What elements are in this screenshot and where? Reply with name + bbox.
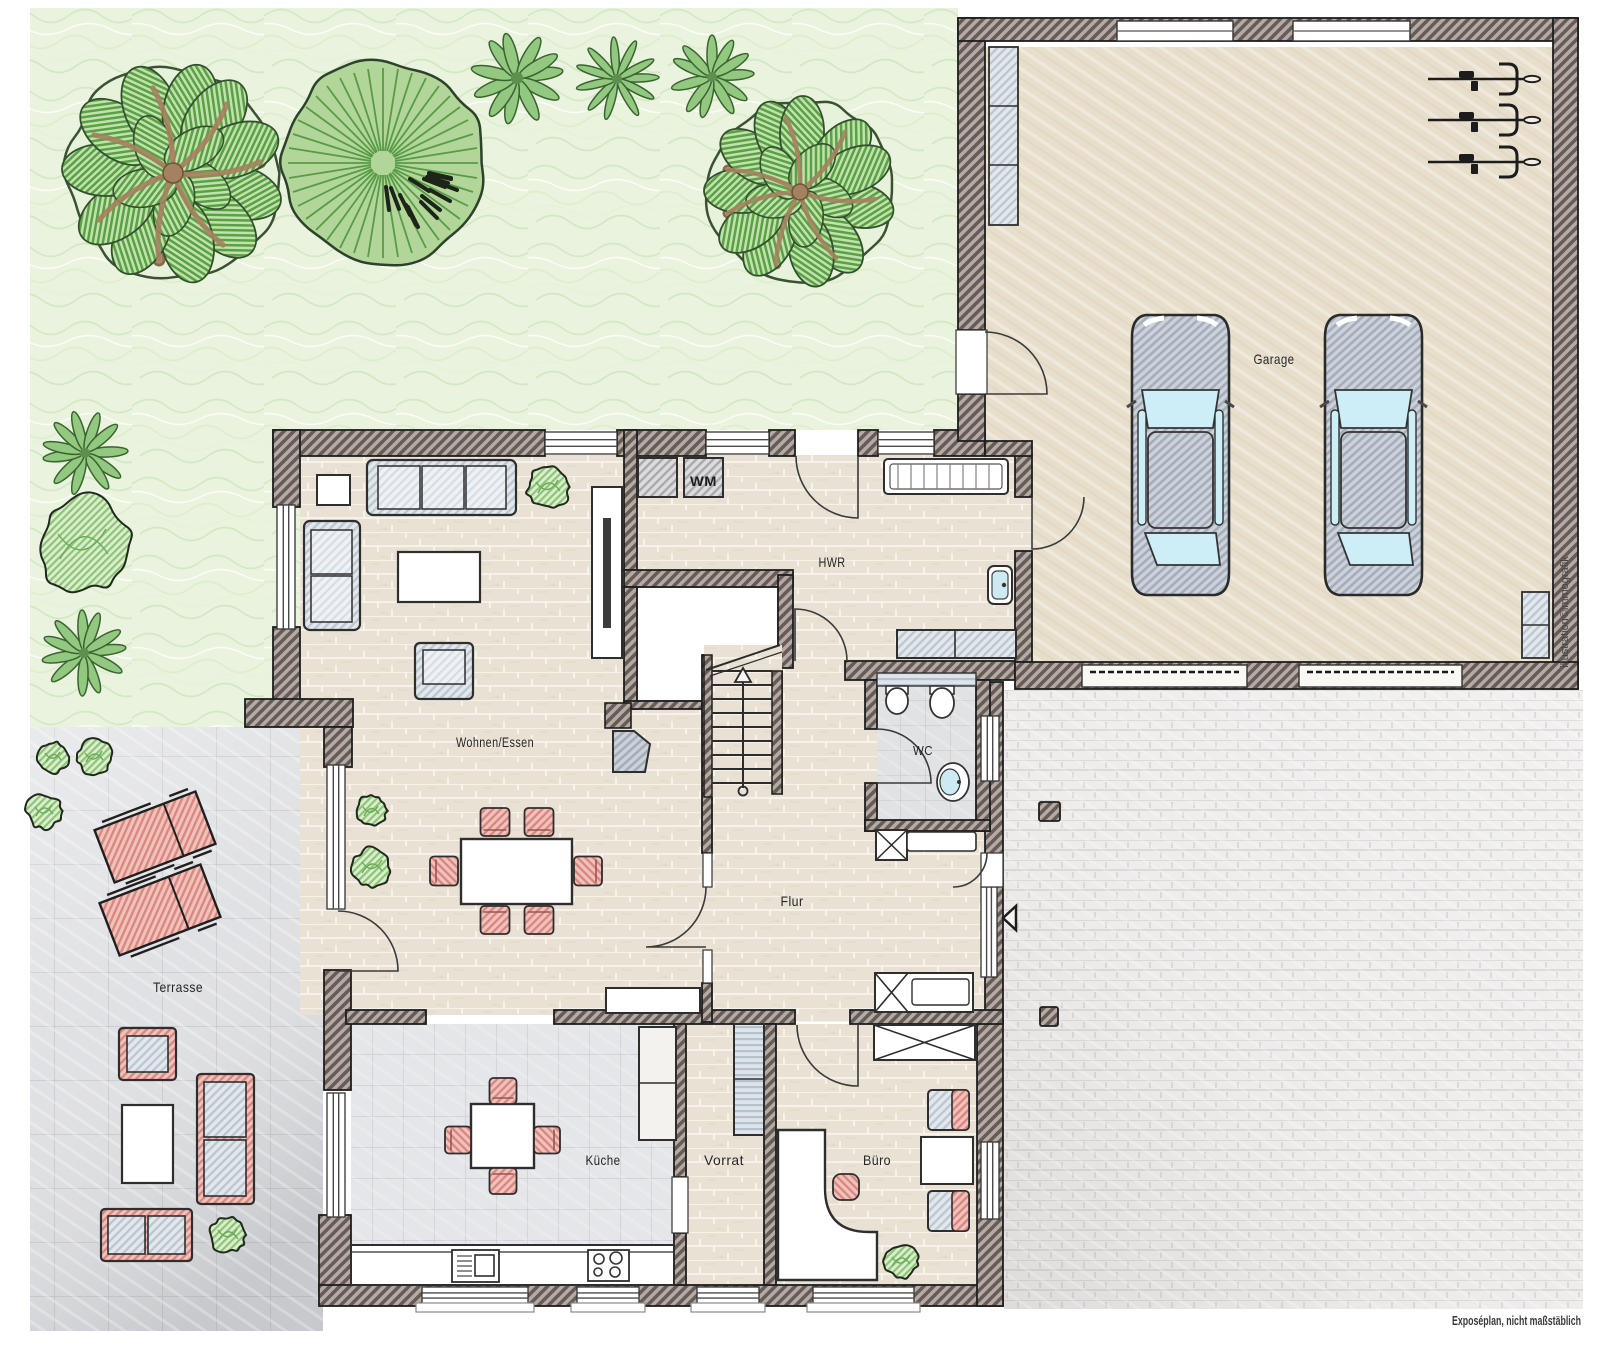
svg-text:WM: WM	[690, 473, 717, 489]
svg-text:Flur: Flur	[781, 893, 804, 909]
svg-text:Vorrat: Vorrat	[704, 1152, 744, 1168]
svg-text:illustration©immografik: illustration©immografik	[1559, 556, 1571, 668]
svg-text:Exposéplan, nicht maßstäblich: Exposéplan, nicht maßstäblich	[1452, 1313, 1581, 1328]
svg-text:Küche: Küche	[586, 1152, 621, 1168]
svg-text:HWR: HWR	[819, 554, 846, 570]
svg-text:Garage: Garage	[1254, 351, 1295, 367]
svg-text:Terrasse: Terrasse	[153, 979, 203, 995]
svg-text:Wohnen/Essen: Wohnen/Essen	[456, 734, 534, 750]
svg-text:WC: WC	[913, 743, 933, 758]
svg-text:Büro: Büro	[863, 1152, 891, 1168]
